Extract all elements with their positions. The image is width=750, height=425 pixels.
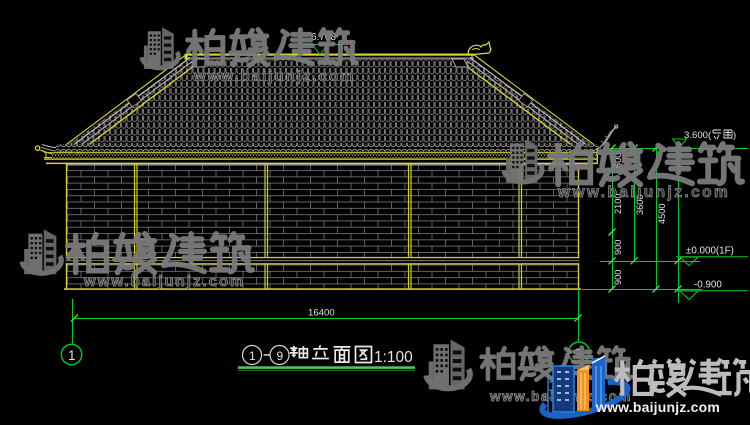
svg-text:1: 1 [68,348,76,363]
svg-text:www.baijunjz.com: www.baijunjz.com [193,68,355,85]
svg-text:1: 1 [249,349,256,363]
svg-text:1:100: 1:100 [374,349,413,366]
svg-text:4500: 4500 [657,204,667,224]
svg-text:9: 9 [277,349,284,363]
svg-text:www.baijunjz.com: www.baijunjz.com [595,399,720,415]
svg-text:3.600(: 3.600( [684,130,712,141]
svg-text:www.baijunjz.com: www.baijunjz.com [557,184,730,201]
svg-text:16400: 16400 [308,308,335,319]
svg-text:): ) [733,130,736,141]
svg-text:900: 900 [613,240,623,255]
svg-text:www.baijunjz.com: www.baijunjz.com [83,273,245,290]
svg-text:-0.900: -0.900 [694,280,722,291]
svg-text:±0.000(1F): ±0.000(1F) [686,246,734,257]
svg-text:900: 900 [613,270,623,285]
